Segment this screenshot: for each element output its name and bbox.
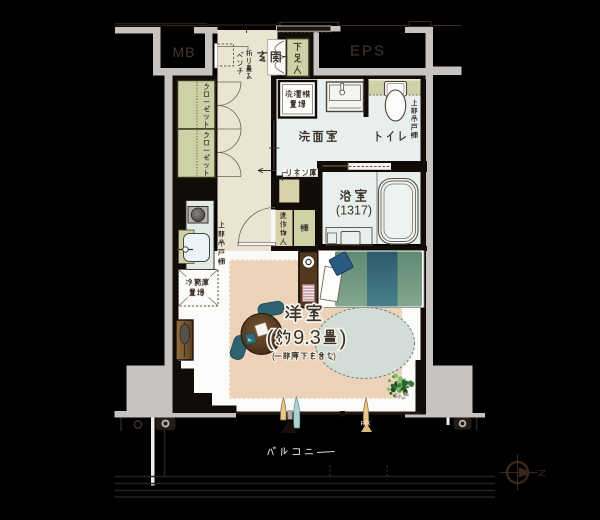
- svg-text:N: N: [536, 469, 547, 476]
- svg-text:): ): [333, 351, 336, 361]
- svg-text:(: (: [267, 327, 274, 350]
- svg-text:FIX: FIX: [360, 421, 371, 428]
- svg-text:9.3: 9.3: [293, 327, 321, 349]
- svg-text:MB: MB: [173, 44, 196, 60]
- svg-text:(1317): (1317): [336, 204, 372, 218]
- svg-text:): ): [340, 327, 347, 350]
- svg-text:EPS: EPS: [350, 43, 386, 60]
